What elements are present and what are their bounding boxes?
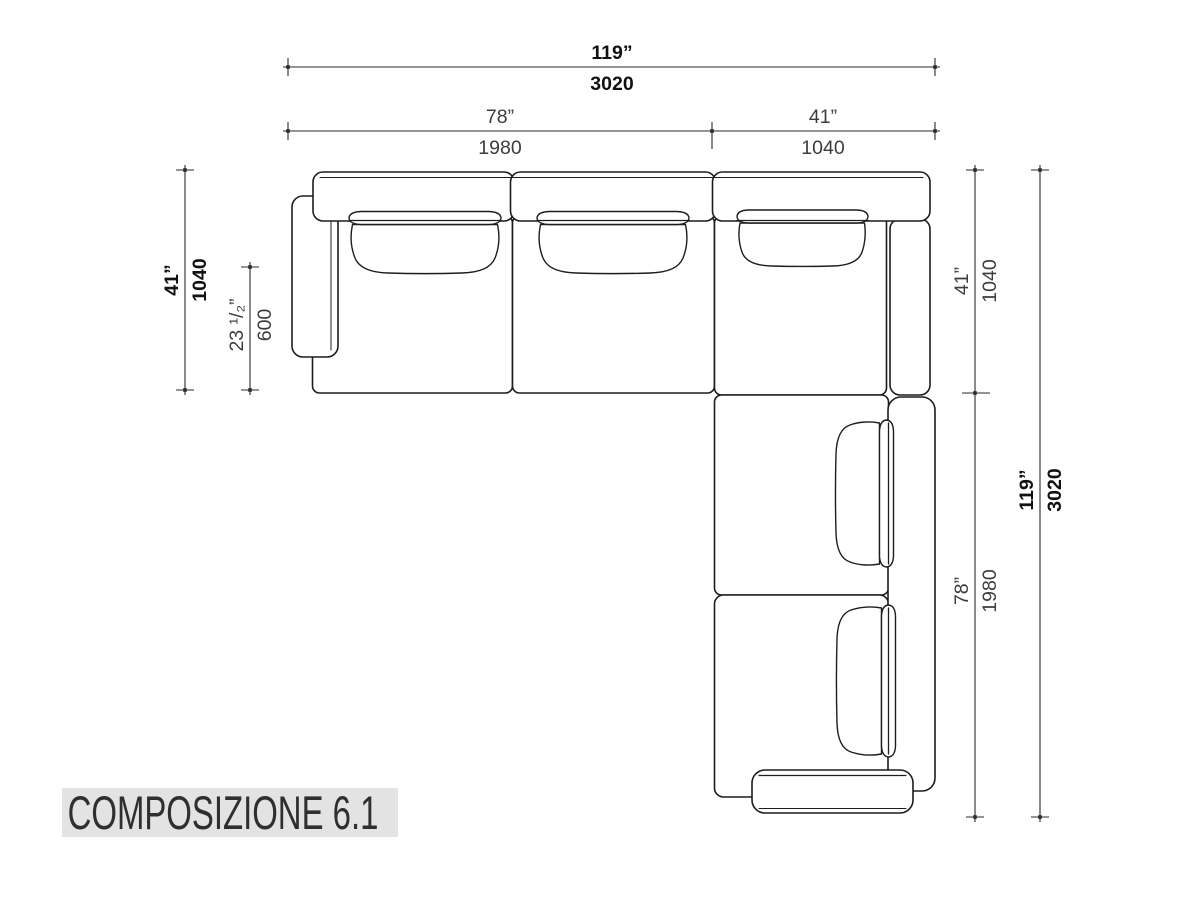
composition-title-box: COMPOSIZIONE 6.1 [62,788,398,837]
dim-label-corner-width-inches: 41” [809,106,837,128]
bottom-armrest [752,770,913,813]
back-cushion-3 [836,420,894,567]
seat-modules [313,216,889,797]
dim-label-right-corner-depth-inches: 41” [951,267,973,295]
dim-label-left-depth-mm: 1040 [189,258,211,302]
dim-label-left-section-width-inches: 78” [486,106,514,128]
dim-label-seat-depth-inches: 23 ¹/₂” [226,298,248,351]
dim-label-left-section-width-mm: 1980 [478,137,522,159]
right-backrest-upper [890,219,930,395]
dim-label-overall-height-mm: 3020 [1044,468,1066,512]
sofa-top-view [292,172,935,813]
dim-label-left-depth-inches: 41” [161,264,183,295]
sofa-plan-drawing: 119”302078”198041”104041”104023 ¹/₂”6004… [0,0,1200,900]
back-cushion-4 [837,605,896,757]
dim-label-right-corner-depth-mm: 1040 [979,259,1001,303]
dim-label-overall-width-mm: 3020 [590,73,634,95]
dim-label-right-section-length-inches: 78” [951,577,973,605]
back-cushion-corner [737,210,868,266]
dim-label-corner-width-mm: 1040 [801,137,845,159]
dim-label-overall-height-inches: 119” [1016,469,1038,510]
technical-drawing-page: 119”302078”198041”104041”104023 ¹/₂”6004… [0,0,1200,900]
dim-label-overall-width-inches: 119” [591,42,632,64]
dim-label-seat-depth-mm: 600 [254,309,276,342]
composition-title: COMPOSIZIONE 6.1 [62,788,378,837]
dim-label-right-section-length-mm: 1980 [979,569,1001,613]
